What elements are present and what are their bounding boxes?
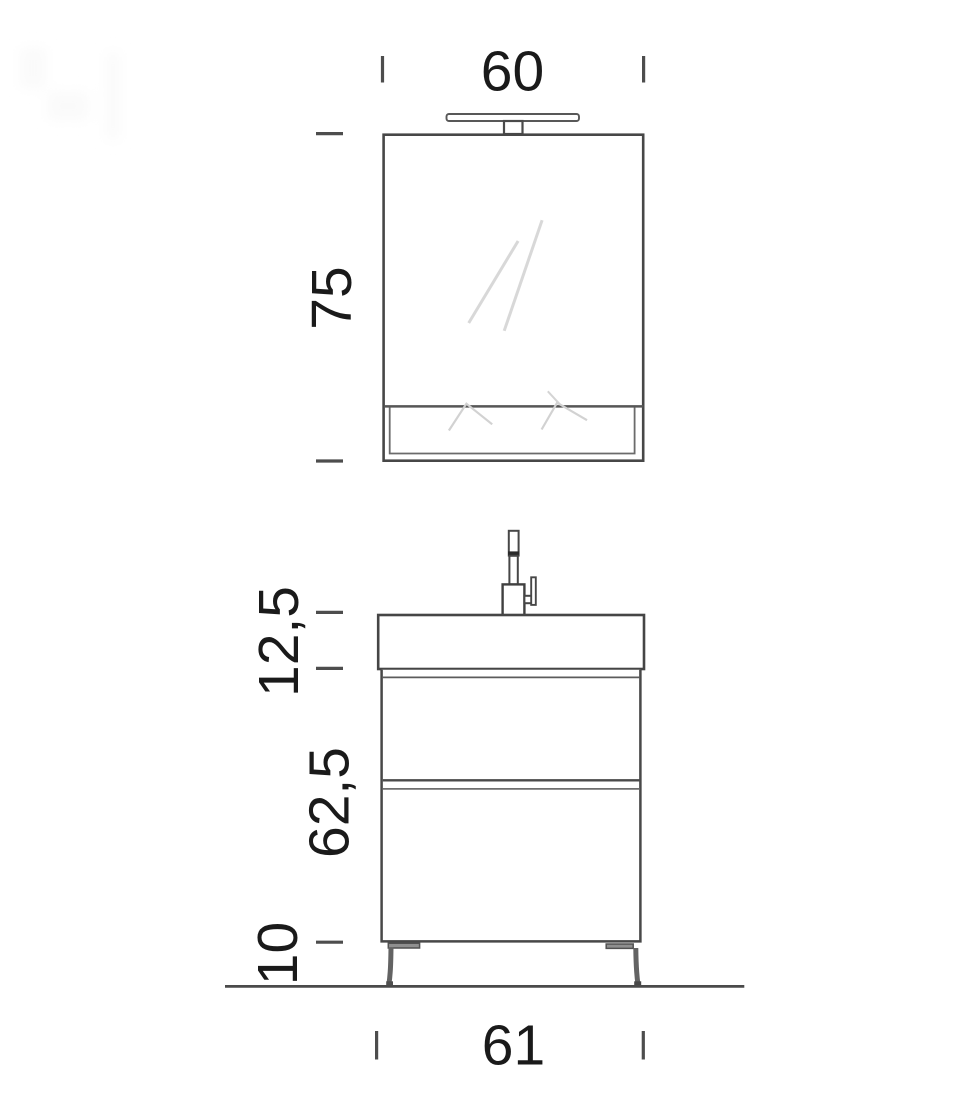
svg-text:12,5: 12,5 [247, 586, 311, 697]
svg-text:10: 10 [246, 922, 310, 985]
svg-text:61: 61 [482, 1013, 545, 1077]
svg-text:62,5: 62,5 [298, 747, 362, 858]
svg-text:75: 75 [300, 266, 364, 329]
svg-text:60: 60 [481, 39, 544, 103]
